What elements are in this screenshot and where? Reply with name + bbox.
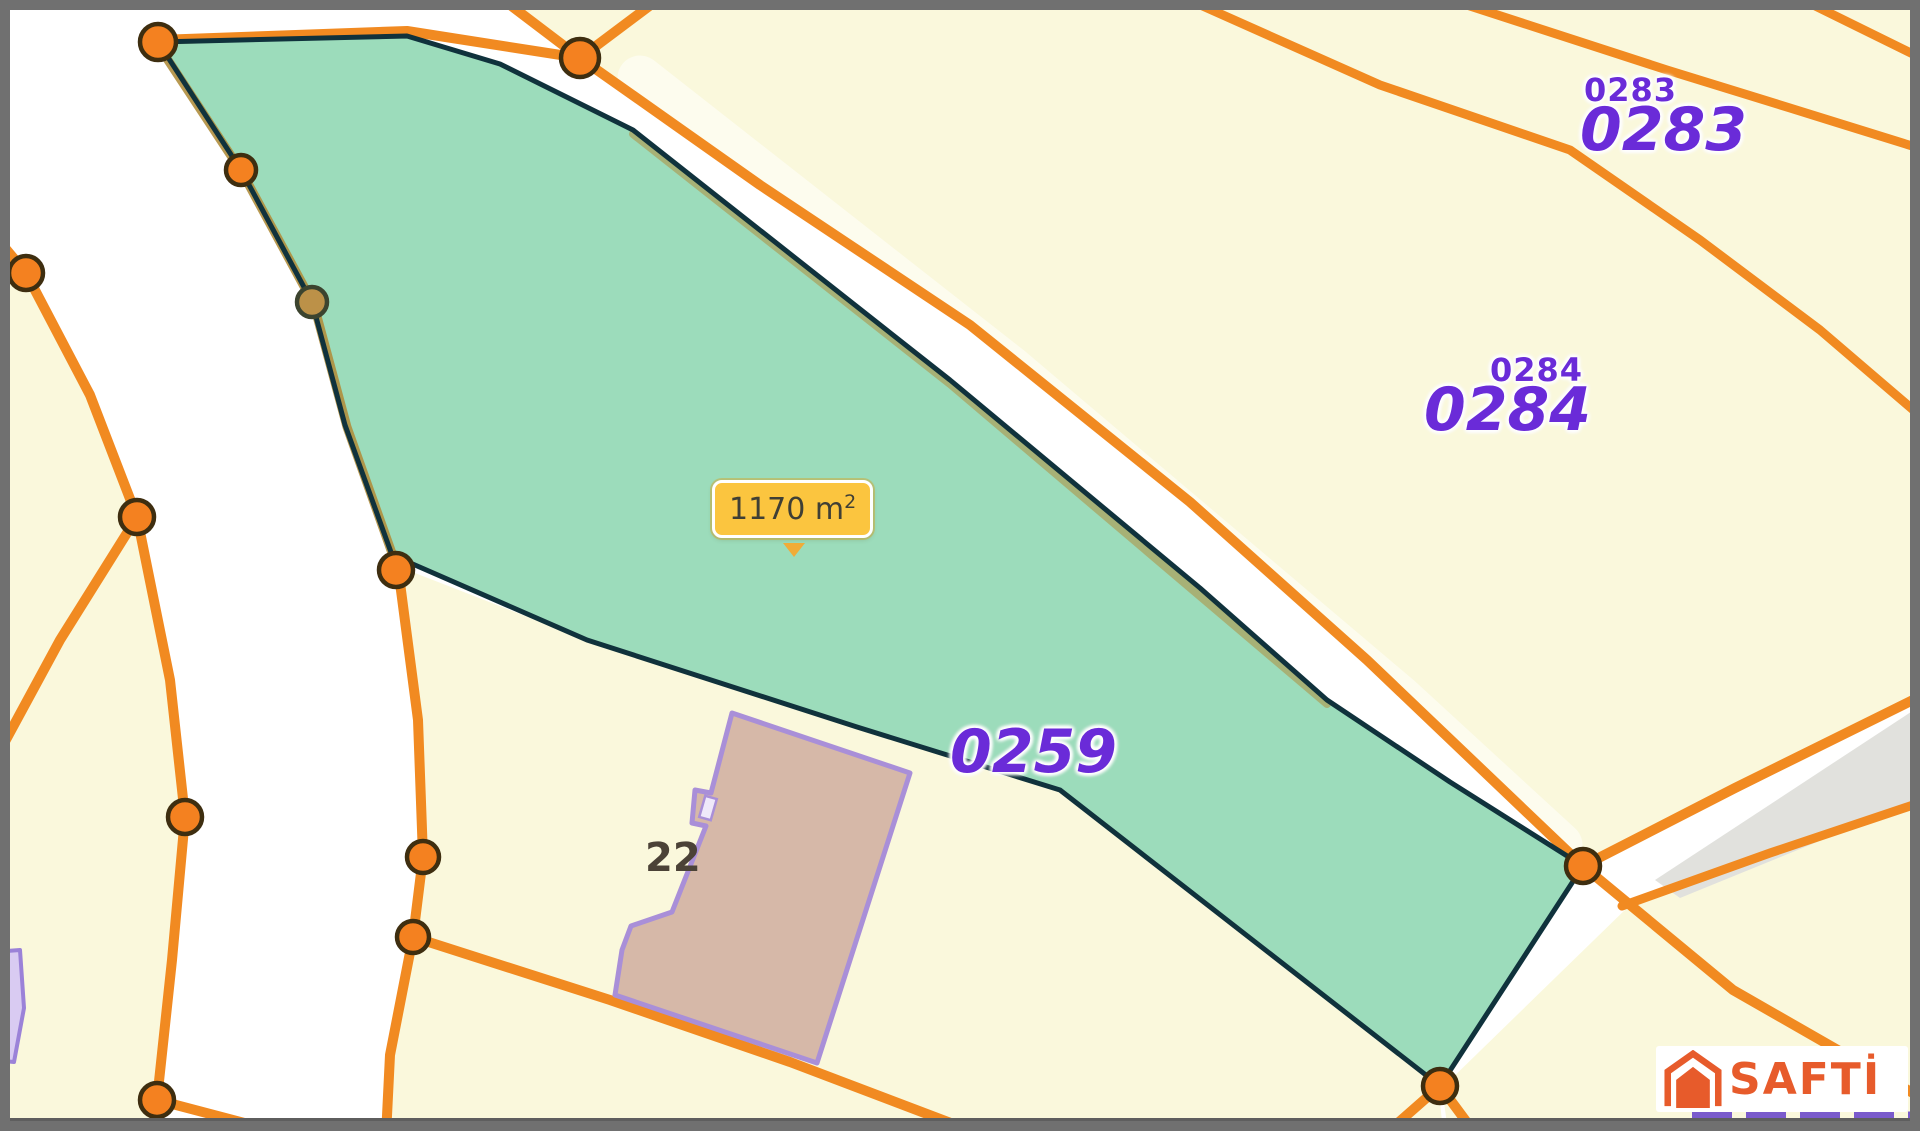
vertex-marker[interactable] (397, 921, 429, 953)
vertex-marker[interactable] (168, 800, 202, 834)
area-badge: 1170 m2 (712, 480, 873, 538)
cadastral-map: 0283 0283 0284 0284 0259 22 1170 m2 SAFT… (0, 0, 1920, 1131)
vertex-marker[interactable] (379, 553, 413, 587)
vertex-marker[interactable] (1566, 849, 1600, 883)
vertex-marker[interactable] (561, 39, 599, 77)
vertex-marker[interactable] (407, 841, 439, 873)
safti-logo: SAFTİ (1656, 1046, 1908, 1112)
area-badge-arrow (783, 543, 805, 557)
map-canvas (0, 0, 1920, 1131)
parcel-label-0284: 0284 (1424, 380, 1591, 440)
vertex-marker[interactable] (140, 1083, 174, 1117)
area-unit: m (815, 492, 844, 527)
area-exponent: 2 (844, 491, 856, 513)
vertex-marker[interactable] (9, 256, 43, 290)
vertex-marker[interactable] (140, 24, 176, 60)
vertex-marker[interactable] (120, 500, 154, 534)
safti-house-icon (1663, 1050, 1723, 1108)
parcel-label-0283: 0283 (1580, 100, 1747, 160)
vertex-marker[interactable] (226, 155, 256, 185)
building-number-label: 22 (645, 838, 701, 878)
safti-brand-text: SAFTİ (1729, 1058, 1881, 1102)
parcel-label-0259: 0259 (950, 722, 1117, 782)
vertex-marker[interactable] (297, 287, 327, 317)
area-value: 1170 (729, 492, 805, 527)
vertex-marker[interactable] (1423, 1069, 1457, 1103)
